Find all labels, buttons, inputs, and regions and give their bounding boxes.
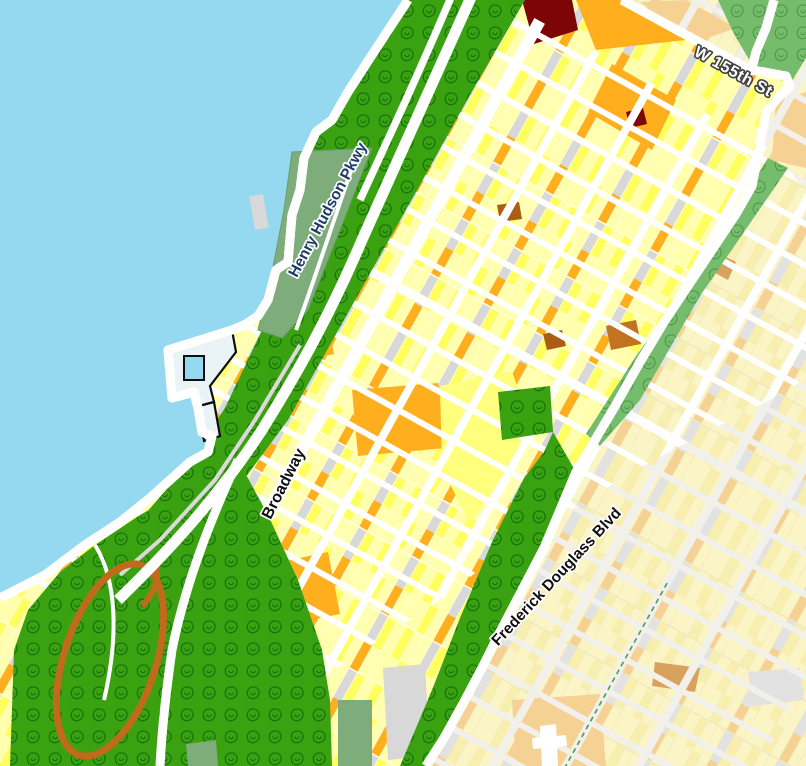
map-canvas[interactable]: W 155th St Henry Hudson Pkwy Broadway Fr… xyxy=(0,0,806,766)
map-viewport[interactable]: W 155th St Henry Hudson Pkwy Broadway Fr… xyxy=(0,0,806,766)
